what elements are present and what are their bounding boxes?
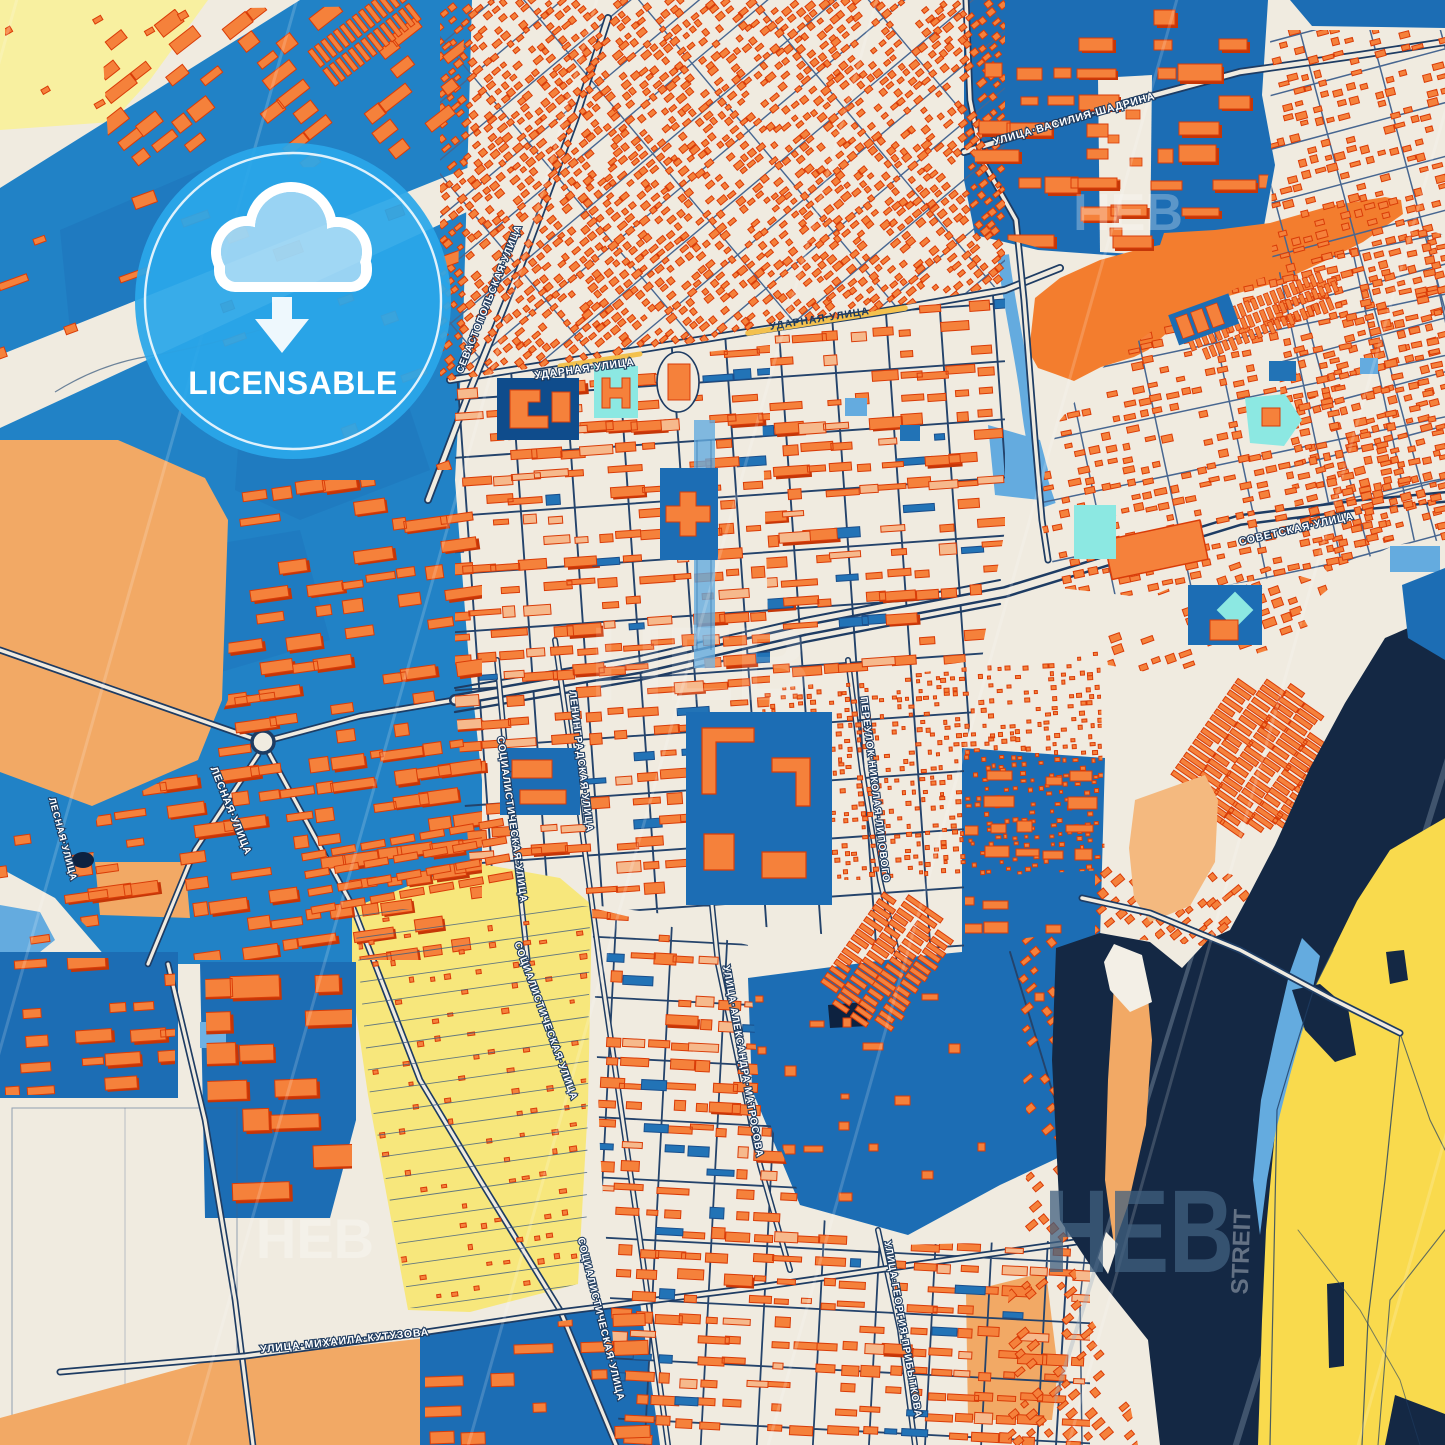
svg-text:HEB: HEB xyxy=(1044,1166,1234,1298)
svg-text:STREIT: STREIT xyxy=(1227,1208,1257,1295)
svg-text:HEB: HEB xyxy=(1073,184,1183,242)
svg-text:LICENSABLE: LICENSABLE xyxy=(188,365,397,401)
svg-text:HEB: HEB xyxy=(256,1207,374,1270)
svg-text:HEB: HEB xyxy=(589,606,811,723)
